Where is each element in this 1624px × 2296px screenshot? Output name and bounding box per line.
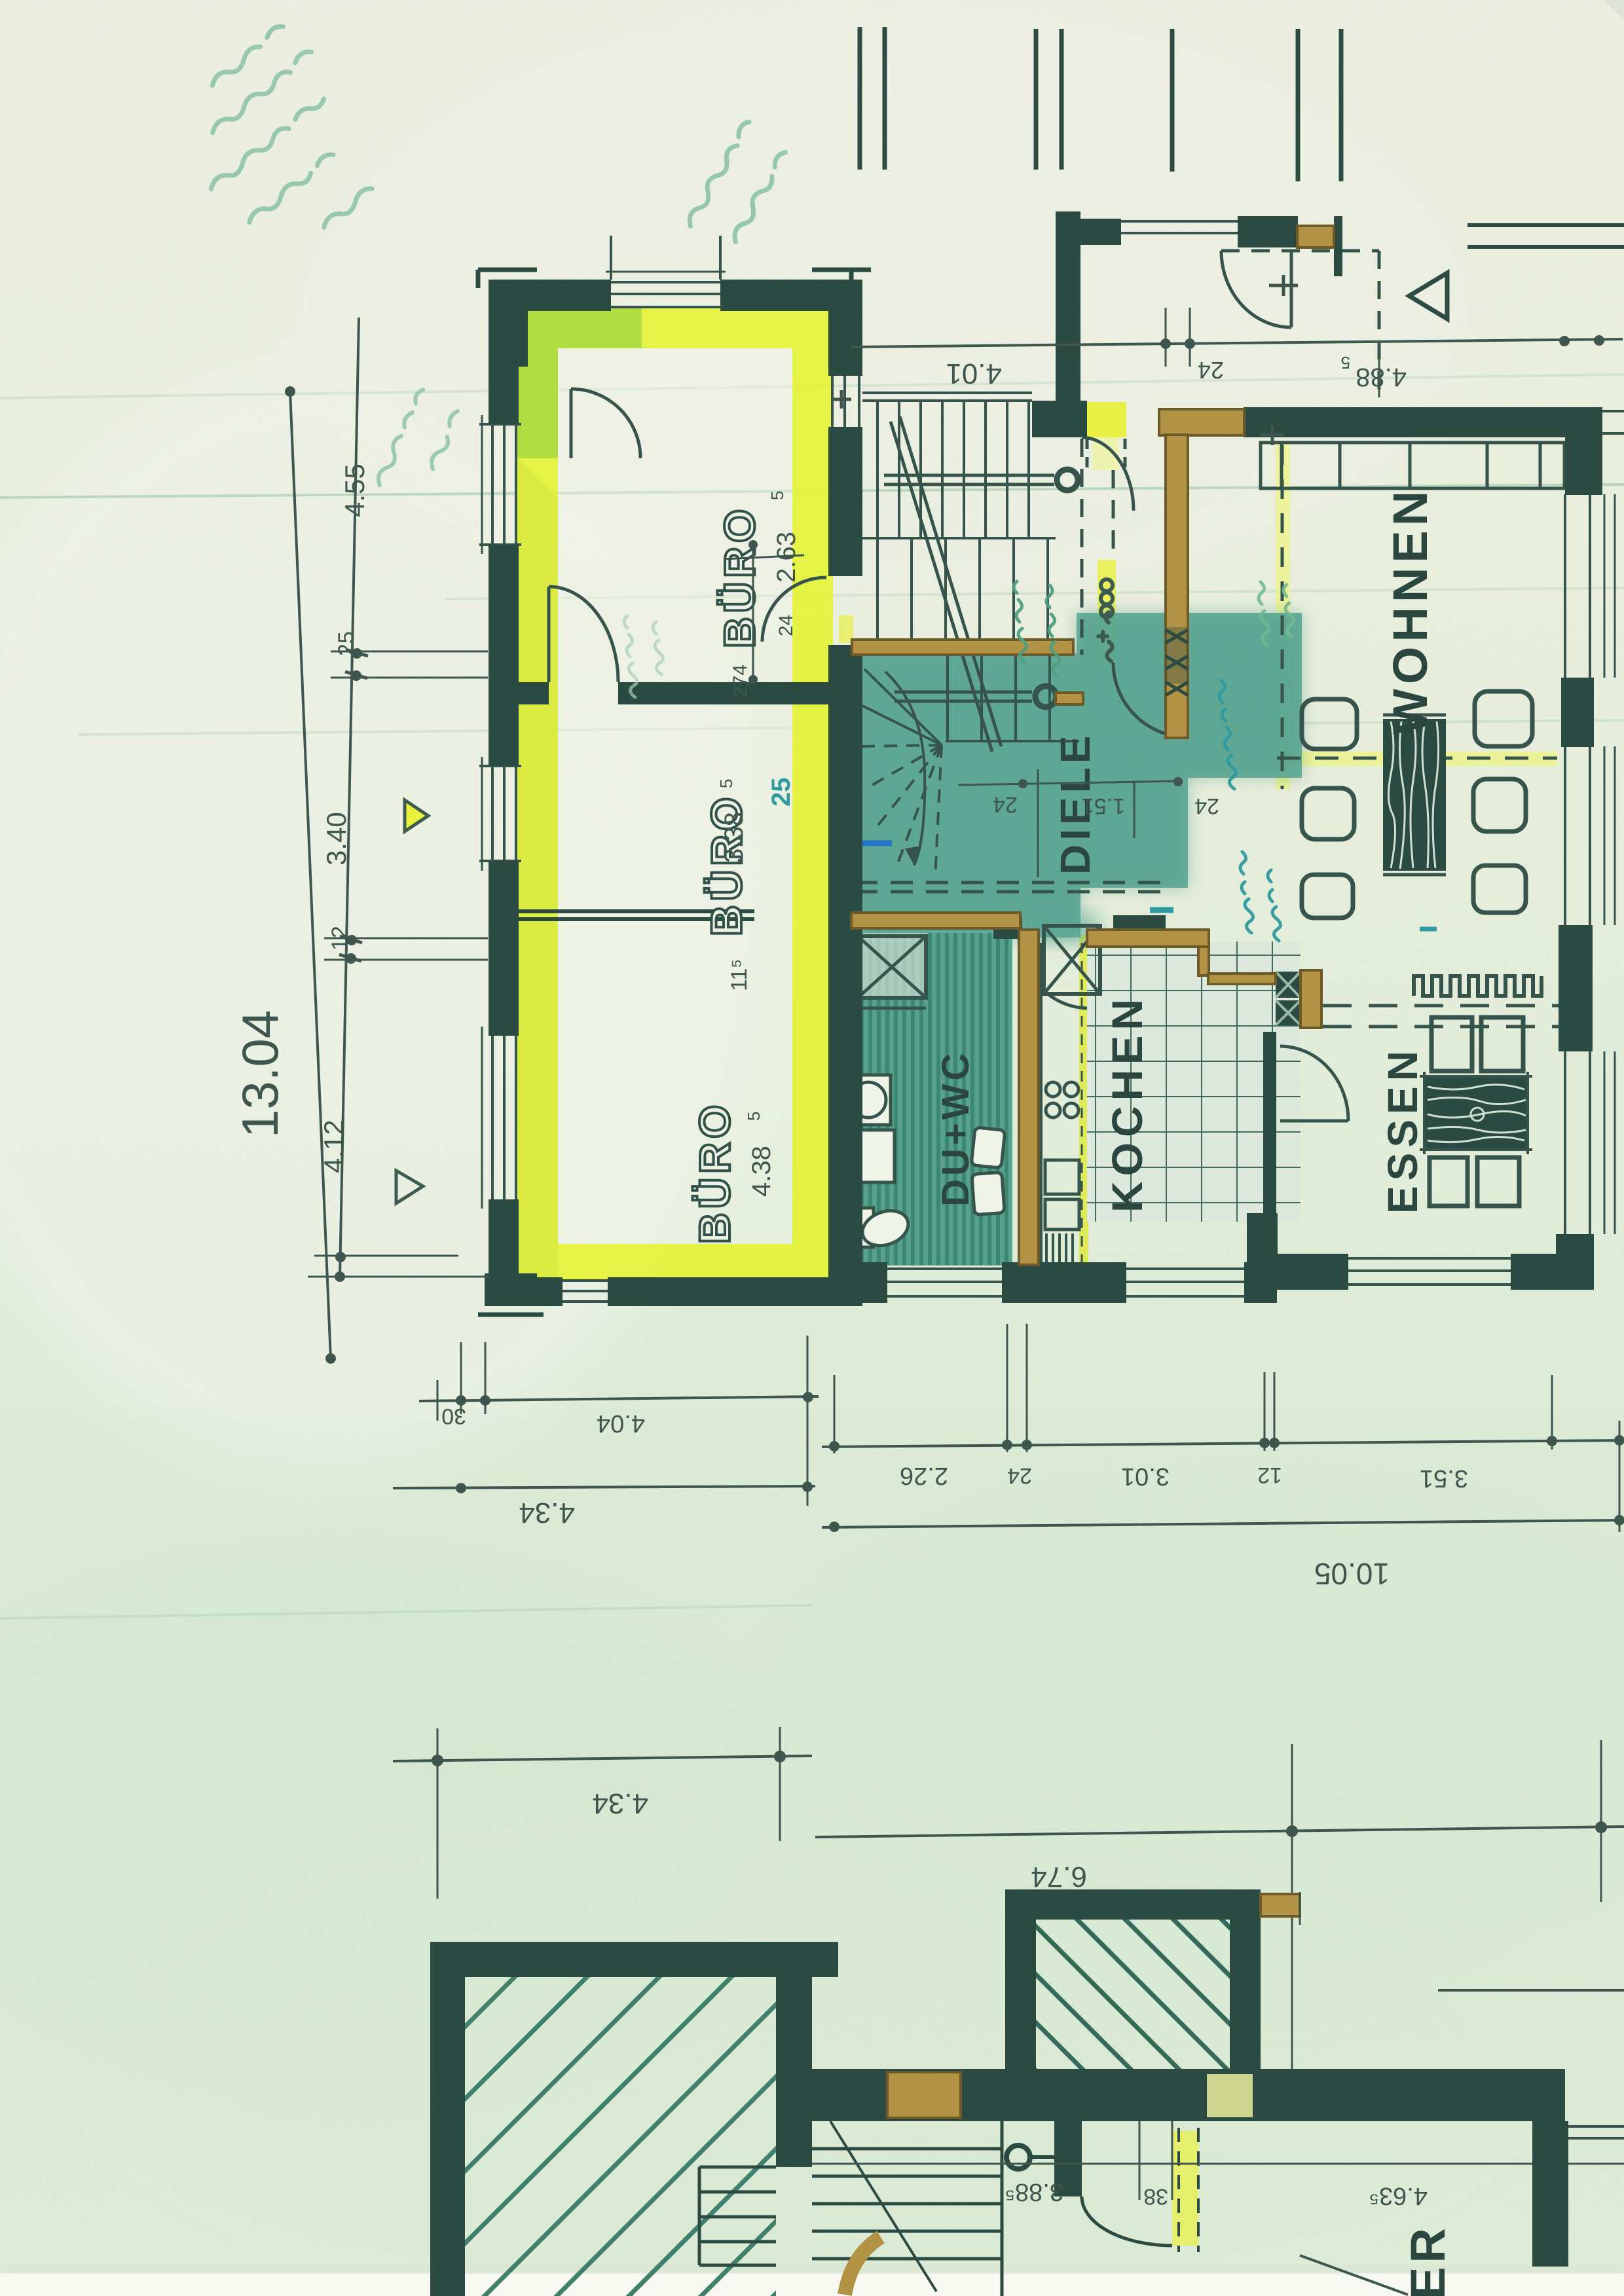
svg-text:4.38: 4.38 — [747, 1146, 776, 1197]
svg-text:1.51: 1.51 — [1082, 793, 1125, 818]
svg-text:5: 5 — [767, 491, 787, 500]
svg-text:24: 24 — [1198, 357, 1224, 384]
svg-text:3.38: 3.38 — [720, 812, 748, 863]
svg-text:24: 24 — [775, 615, 797, 636]
svg-text:4.88: 4.88 — [1356, 363, 1407, 392]
svg-text:25: 25 — [334, 631, 359, 656]
svg-text:12: 12 — [327, 926, 352, 951]
svg-text:13.04: 13.04 — [231, 1010, 289, 1138]
svg-text:WOHNEN: WOHNEN — [1383, 486, 1437, 735]
svg-text:DU+WC: DU+WC — [934, 1050, 977, 1207]
svg-text:5: 5 — [716, 779, 736, 788]
svg-text:ESSEN: ESSEN — [1379, 1046, 1426, 1214]
svg-text:12: 12 — [1257, 1463, 1282, 1487]
svg-text:10.05: 10.05 — [1314, 1557, 1390, 1591]
svg-text:24: 24 — [1194, 793, 1219, 818]
svg-text:4.63⁵: 4.63⁵ — [1369, 2182, 1428, 2210]
svg-text:4.55: 4.55 — [339, 464, 370, 517]
svg-text:4.04: 4.04 — [597, 1410, 645, 1437]
svg-text:4.12: 4.12 — [318, 1120, 349, 1173]
svg-text:ER: ER — [1401, 2224, 1455, 2296]
svg-text:5: 5 — [1341, 353, 1350, 373]
svg-text:3.01: 3.01 — [1121, 1463, 1170, 1490]
svg-text:3.88⁵: 3.88⁵ — [1005, 2178, 1063, 2206]
svg-text:3.40: 3.40 — [321, 812, 352, 866]
svg-text:KOCHEN: KOCHEN — [1103, 994, 1151, 1212]
svg-text:24: 24 — [993, 792, 1018, 817]
svg-text:2.63: 2.63 — [772, 532, 801, 583]
svg-text:BÜRO: BÜRO — [690, 1101, 739, 1244]
svg-text:11⁵: 11⁵ — [727, 959, 752, 991]
svg-text:3.51: 3.51 — [1420, 1465, 1468, 1492]
svg-text:4.34: 4.34 — [592, 1787, 648, 1819]
svg-text:24: 24 — [1007, 1463, 1032, 1488]
svg-text:4.01: 4.01 — [946, 357, 1002, 390]
svg-text:30: 30 — [441, 1404, 466, 1429]
svg-text:4.34: 4.34 — [519, 1497, 575, 1529]
svg-text:274: 274 — [729, 665, 751, 697]
svg-text:BÜRO: BÜRO — [715, 505, 764, 648]
svg-text:25: 25 — [767, 778, 796, 807]
svg-text:2.26: 2.26 — [900, 1462, 948, 1489]
svg-text:6.74: 6.74 — [1031, 1861, 1087, 1893]
svg-text:5: 5 — [744, 1112, 764, 1121]
svg-text:38: 38 — [1143, 2184, 1168, 2209]
